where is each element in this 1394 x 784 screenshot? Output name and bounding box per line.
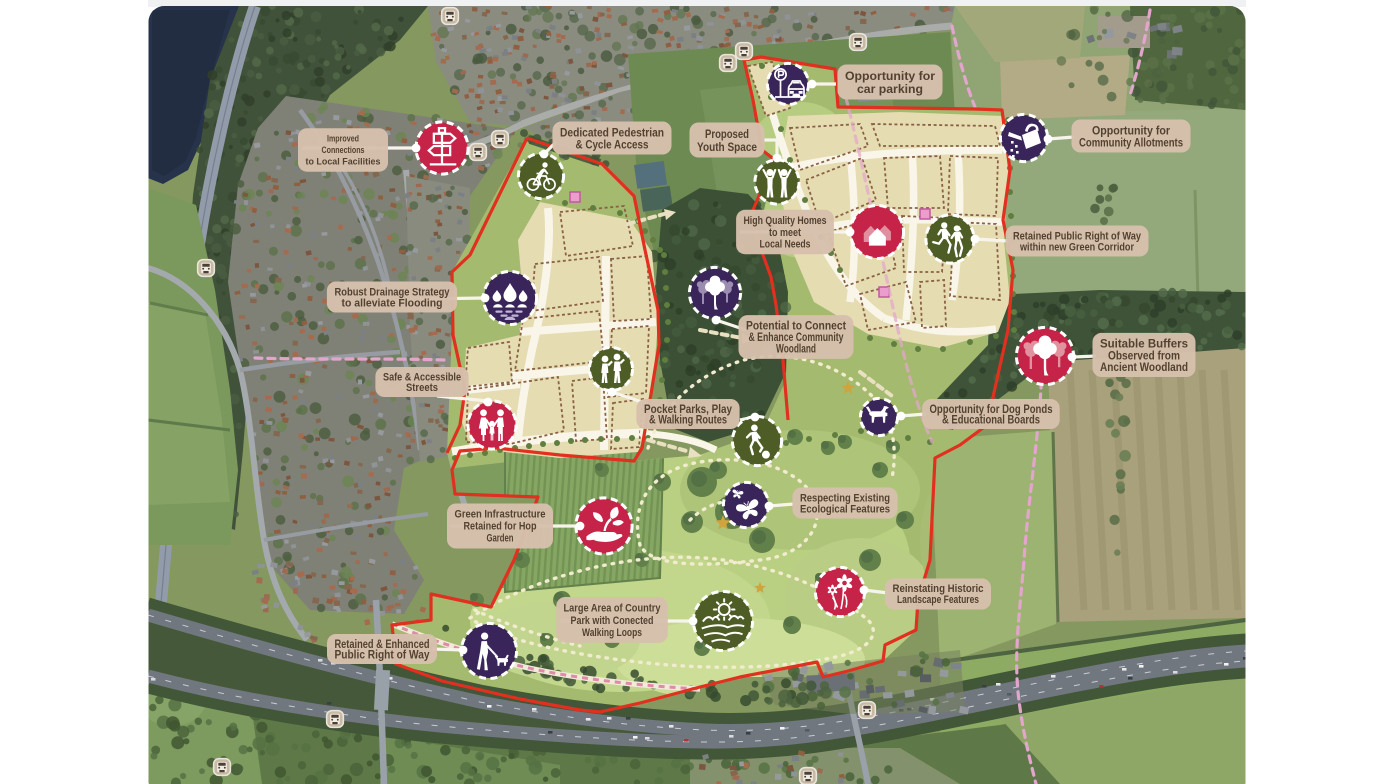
svg-text:car parking: car parking (857, 82, 923, 96)
svg-text:Walking Loops: Walking Loops (582, 627, 642, 639)
svg-text:Garden: Garden (487, 533, 514, 545)
svg-text:Green Infrastructure: Green Infrastructure (455, 509, 546, 521)
svg-text:to Local Facilities: to Local Facilities (306, 157, 381, 167)
svg-text:Ecological Features: Ecological Features (800, 503, 890, 515)
svg-text:Community Allotments: Community Allotments (1079, 135, 1183, 149)
svg-text:to meet: to meet (769, 227, 801, 239)
svg-text:Streets: Streets (406, 382, 438, 394)
svg-text:Local Needs: Local Needs (760, 239, 811, 251)
svg-text:& Cycle Access: & Cycle Access (576, 137, 649, 151)
svg-text:Improved: Improved (327, 134, 359, 144)
svg-text:Ancient Woodland: Ancient Woodland (1100, 360, 1188, 374)
svg-text:High Quality Homes: High Quality Homes (744, 215, 827, 227)
svg-text:Opportunity for: Opportunity for (845, 69, 935, 83)
svg-text:Large Area of Country: Large Area of Country (564, 603, 661, 615)
svg-text:Woodland: Woodland (776, 342, 816, 356)
svg-text:Youth Space: Youth Space (697, 140, 757, 154)
svg-text:Retained for Hop: Retained for Hop (464, 521, 537, 533)
svg-text:Proposed: Proposed (705, 127, 749, 141)
svg-text:& Educational Boards: & Educational Boards (942, 414, 1040, 426)
svg-text:Connections: Connections (322, 145, 365, 155)
svg-text:Public Right of Way: Public Right of Way (335, 647, 430, 661)
svg-text:Park with Conected: Park with Conected (571, 615, 654, 627)
svg-text:& Walking Routes: & Walking Routes (649, 414, 727, 426)
svg-text:within new Green Corridor: within new Green Corridor (1019, 241, 1134, 253)
svg-text:to alleviate Flooding: to alleviate Flooding (342, 297, 443, 309)
svg-text:Landscape Features: Landscape Features (897, 594, 979, 606)
